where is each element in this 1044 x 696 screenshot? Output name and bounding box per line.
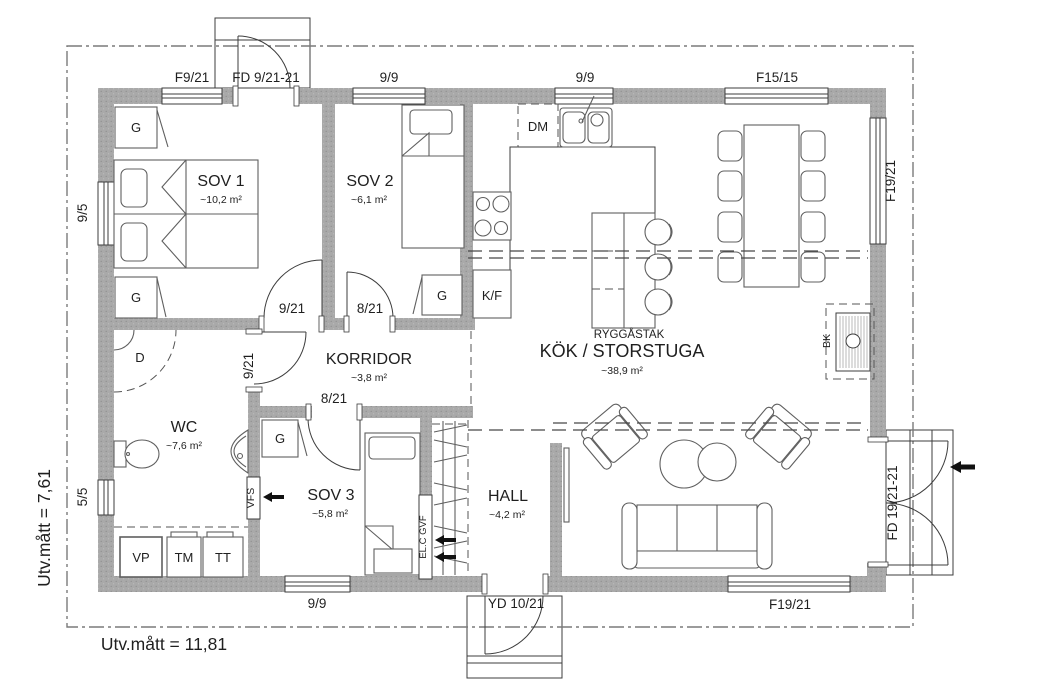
dryer-label: TT: [215, 550, 231, 565]
label-f9-21: F9/21: [175, 70, 210, 85]
wardrobe-label: G: [131, 120, 141, 135]
tv: [564, 448, 569, 522]
sov2-furniture: [402, 105, 464, 315]
window-f19-21-bottom: [728, 576, 850, 592]
outer-width: Utv.mått = 11,81: [101, 634, 227, 654]
window-9-9-a: [353, 88, 425, 104]
label-door-8-21-b: 8/21: [321, 391, 347, 406]
wardrobe-label: G: [437, 288, 447, 303]
label-fd9-21: FD 9/21-21: [232, 70, 300, 85]
window-5-5: [98, 480, 114, 515]
label-door-8-21-a: 8/21: [357, 301, 383, 316]
room-hall-area: ~4,2 m²: [489, 509, 525, 521]
toilet: [114, 440, 159, 468]
fridge-label: K/F: [482, 288, 502, 303]
label-f19-21-bottom: F19/21: [769, 597, 811, 612]
window-9-5: [98, 182, 114, 245]
sofa: [622, 503, 772, 569]
wardrobe-label: G: [275, 431, 285, 446]
arrow-icon: [263, 492, 284, 502]
label-door-9-21-a: 9/21: [279, 301, 305, 316]
label-9-9-a: 9/9: [380, 70, 399, 85]
island: [592, 213, 672, 328]
label-yd10-21: YD 10/21: [488, 596, 544, 611]
kitchen: [473, 96, 672, 328]
stove: [473, 192, 511, 240]
service-markers: [247, 461, 975, 579]
window-f15-15: [725, 88, 828, 104]
wc-fixtures: [114, 330, 248, 577]
room-wc-area: ~7,6 m²: [166, 440, 202, 452]
label-5-5: 5/5: [75, 488, 90, 507]
wash-basin: [231, 430, 248, 473]
door-yd10-21: [482, 574, 548, 654]
label-9-9-b: 9/9: [576, 70, 595, 85]
door-fd19-21: [868, 437, 948, 567]
room-sov3: SOV 3: [307, 487, 354, 504]
window-9-9-b: [555, 88, 613, 104]
room-kok-ceiling: RYGGÅSTAK: [594, 328, 665, 341]
room-sov2-area: ~6,1 m²: [351, 194, 387, 206]
dishwasher-label: DM: [528, 119, 548, 134]
room-kok-area: ~38,9 m²: [601, 365, 643, 377]
label-f19-21-right: F19/21: [883, 160, 898, 202]
label-f15-15: F15/15: [756, 70, 798, 85]
wardrobe-label: G: [131, 290, 141, 305]
shower-area: [114, 330, 176, 392]
room-korridor-area: ~3,8 m²: [351, 372, 387, 384]
washer-label: TM: [175, 550, 194, 565]
armchair-left: [577, 400, 649, 471]
shower-label: D: [135, 350, 144, 365]
room-sov1: SOV 1: [197, 173, 244, 190]
heatpump-label: VP: [132, 550, 149, 565]
bar-stools: [645, 219, 672, 315]
single-bed: [402, 105, 464, 248]
sov1-furniture: [114, 107, 258, 318]
el-label: EL.C GVF: [418, 515, 429, 558]
fireplace-bk: [826, 304, 874, 379]
room-kok: KÖK / STORSTUGA: [540, 341, 705, 361]
dining-set: [718, 125, 825, 287]
floor-plan-page: F9/21 FD 9/21-21 9/9 9/9 F15/15 9/9 YD 1…: [0, 0, 1044, 696]
label-9-5: 9/5: [75, 204, 90, 223]
outer-height: Utv.mått = 7,61: [34, 469, 54, 587]
fireplace-label: BK: [821, 334, 833, 348]
arrow-icon: [950, 461, 975, 473]
coffee-tables: [660, 440, 736, 488]
single-bed: [365, 433, 420, 575]
room-sov3-area: ~5,8 m²: [312, 508, 348, 520]
window-f9-21: [162, 88, 222, 104]
room-sov2: SOV 2: [346, 173, 393, 190]
vfs-label: VFS: [245, 488, 257, 508]
floor-plan-drawing: F9/21 FD 9/21-21 9/9 9/9 F15/15 9/9 YD 1…: [0, 0, 1044, 696]
armchair-right: [744, 400, 816, 471]
room-hall: HALL: [488, 488, 528, 505]
room-wc: WC: [171, 419, 198, 436]
room-sov1-area: ~10,2 m²: [200, 194, 242, 206]
label-9-9-c: 9/9: [308, 596, 327, 611]
living-room: [564, 400, 816, 569]
label-fd19-21: FD 19/21-21: [885, 465, 900, 540]
hall-coat-rack: [434, 421, 467, 575]
label-door-9-21-b: 9/21: [241, 353, 256, 379]
room-korridor: KORRIDOR: [326, 351, 412, 368]
door-sov1: [259, 260, 324, 332]
window-9-9-c: [285, 576, 350, 592]
door-sov3: [306, 404, 362, 470]
